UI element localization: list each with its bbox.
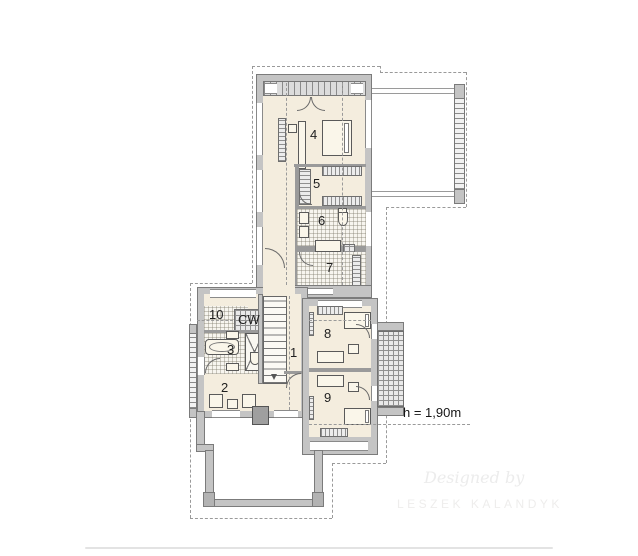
room-label-6: 6 bbox=[318, 214, 325, 227]
desk bbox=[317, 375, 344, 387]
room-label-cw: CW bbox=[238, 313, 260, 326]
armchair bbox=[209, 394, 223, 408]
window bbox=[365, 100, 372, 148]
window bbox=[274, 410, 298, 418]
room-label-2: 2 bbox=[221, 381, 228, 394]
side-table bbox=[227, 399, 238, 409]
room-label-1: 1 bbox=[290, 346, 297, 359]
watermark-designed-by: Designed by bbox=[424, 468, 524, 487]
height-line-dash bbox=[309, 320, 371, 321]
window bbox=[212, 410, 240, 418]
room-label-5: 5 bbox=[313, 177, 320, 190]
stair-direction-arrow bbox=[271, 374, 277, 380]
roof-outline-dash bbox=[386, 207, 466, 208]
chair bbox=[348, 344, 359, 354]
wardrobe bbox=[317, 306, 343, 315]
roof-outline-dash bbox=[252, 66, 380, 67]
terrace-edge bbox=[372, 93, 456, 94]
terrace-column bbox=[203, 492, 215, 507]
sink bbox=[299, 212, 309, 224]
room-label-7: 7 bbox=[326, 261, 333, 274]
room-label-9: 9 bbox=[324, 391, 331, 404]
window bbox=[210, 289, 256, 298]
pergola-gap bbox=[265, 83, 277, 94]
watermark-designer-name: LESZEK KALANDYK bbox=[397, 497, 563, 511]
window bbox=[305, 288, 333, 295]
chimney bbox=[252, 406, 269, 425]
vanity bbox=[315, 240, 341, 252]
room-label-10: 10 bbox=[209, 308, 223, 321]
terrace-railing-post bbox=[454, 189, 465, 204]
bed-pillow bbox=[365, 410, 369, 423]
room-label-4: 4 bbox=[310, 128, 317, 141]
desk bbox=[317, 351, 344, 363]
hall-corridor-junction bbox=[263, 285, 295, 296]
terrace-beam bbox=[205, 499, 323, 507]
balcony-door-opening bbox=[197, 357, 205, 375]
terrace-railing bbox=[454, 99, 465, 189]
pergola-gap bbox=[351, 83, 363, 94]
roof-outline-dash bbox=[190, 518, 332, 519]
balcony-railing bbox=[189, 334, 197, 408]
balcony-railing-post bbox=[189, 324, 197, 334]
floor-plan-canvas: 4 5 6 7 10 CW 3 1 2 8 9 h = 1,90m Design… bbox=[0, 0, 638, 556]
bed-pillow bbox=[344, 123, 349, 153]
roof-outline-dash bbox=[252, 66, 253, 283]
radiator bbox=[309, 312, 314, 336]
window bbox=[365, 212, 372, 246]
roof-outline-dash bbox=[332, 463, 386, 464]
terrace-edge bbox=[372, 191, 456, 192]
partition-wall bbox=[309, 368, 371, 372]
height-line-dash bbox=[286, 83, 287, 285]
window bbox=[256, 170, 263, 212]
window bbox=[256, 227, 263, 265]
balcony-railing-post bbox=[377, 322, 404, 331]
toilet bbox=[338, 212, 348, 226]
roof-outline-dash bbox=[466, 72, 467, 207]
roof-outline-dash bbox=[380, 72, 466, 73]
terrace-edge bbox=[372, 196, 456, 197]
roof-outline-dash bbox=[332, 463, 333, 518]
shelf bbox=[278, 118, 286, 162]
terrace-edge bbox=[372, 88, 456, 89]
desk bbox=[298, 121, 306, 169]
radiator bbox=[309, 396, 314, 420]
wardrobe bbox=[320, 428, 348, 437]
room-label-3: 3 bbox=[227, 343, 234, 356]
room-label-8: 8 bbox=[324, 327, 331, 340]
sink bbox=[299, 226, 309, 238]
cabinet bbox=[288, 124, 297, 133]
height-annotation: h = 1,90m bbox=[403, 405, 461, 420]
terrace-railing-post bbox=[454, 84, 465, 99]
window bbox=[256, 103, 263, 155]
balcony-railing-post bbox=[377, 407, 404, 416]
page-divider bbox=[85, 547, 553, 549]
sink bbox=[226, 331, 239, 339]
sink bbox=[226, 363, 239, 371]
balcony-deck bbox=[377, 331, 404, 407]
height-line-dash bbox=[309, 424, 470, 425]
radiator bbox=[352, 255, 361, 287]
height-line-dash bbox=[342, 83, 343, 285]
roof-outline-dash bbox=[190, 283, 252, 284]
terrace-column bbox=[312, 492, 324, 507]
